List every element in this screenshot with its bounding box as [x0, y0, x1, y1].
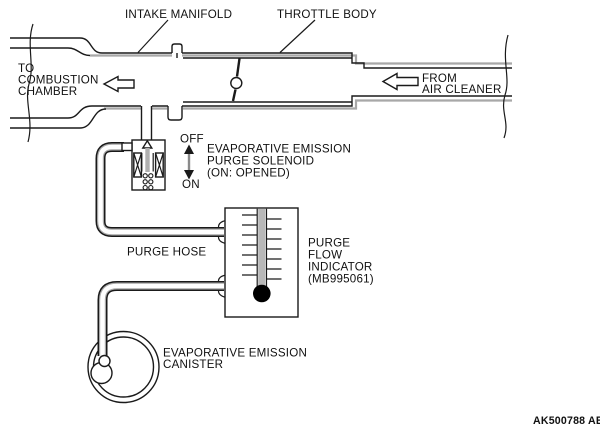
- duct-wall-top-outer: [10, 38, 172, 53]
- label-intake-manifold: INTAKE MANIFOLD: [125, 8, 232, 21]
- label-solenoid-off: OFF: [180, 133, 204, 146]
- purge-port-pipe: [142, 106, 152, 140]
- label-purge-solenoid-line3: (ON: OPENED): [207, 167, 290, 180]
- indicator-tube-fill: [258, 209, 265, 294]
- solenoid-hose-nipple: [122, 143, 132, 151]
- label-from-air-cleaner-line2: AIR CLEANER: [422, 83, 502, 96]
- flow-arrow-to-combustion: [104, 77, 134, 92]
- figure-code: AK500788 AB: [533, 415, 600, 427]
- throttle-plate-lower: [233, 90, 236, 102]
- throttle-valve-symbol: [231, 59, 242, 102]
- label-purge-hose: PURGE HOSE: [127, 246, 206, 259]
- flange-bump-bottom: [168, 106, 182, 120]
- flange-bump-top: [172, 44, 182, 58]
- label-solenoid-on: ON: [182, 178, 200, 191]
- solenoid-state-arrow: [184, 145, 194, 180]
- indicator-float-ball: [253, 285, 271, 303]
- solenoid-plunger: [145, 148, 149, 172]
- duct-shade-top: [90, 56, 512, 64]
- solenoid-coil-right: [156, 153, 164, 177]
- pipe-break-right: [504, 35, 508, 138]
- purge-solenoid-symbol: [122, 140, 165, 190]
- throttle-shaft: [231, 78, 242, 89]
- service-manual-diagram-page: INTAKE MANIFOLD THROTTLE BODY TO COMBUST…: [0, 0, 600, 435]
- arrowhead-up: [184, 145, 194, 155]
- intake-manifold-leader-line: [138, 20, 168, 53]
- throttle-body-leader-line: [280, 20, 315, 53]
- purge-system-diagram: INTAKE MANIFOLD THROTTLE BODY TO COMBUST…: [0, 0, 600, 435]
- label-throttle-body: THROTTLE BODY: [277, 8, 377, 21]
- hose-end-ball: [99, 356, 110, 367]
- label-canister-line2: CANISTER: [163, 358, 223, 371]
- purge-hose-lower: [103, 286, 225, 356]
- duct-wall-top-inner: [10, 48, 90, 56]
- throttle-plate-upper: [237, 59, 240, 77]
- purge-flow-indicator-symbol: [219, 208, 299, 317]
- label-to-combustion-line3: CHAMBER: [18, 85, 77, 98]
- flow-arrow-from-air-cleaner: [383, 74, 418, 90]
- solenoid-coil-left: [134, 153, 142, 177]
- label-flow-indicator-line4: (MB995061): [308, 273, 374, 286]
